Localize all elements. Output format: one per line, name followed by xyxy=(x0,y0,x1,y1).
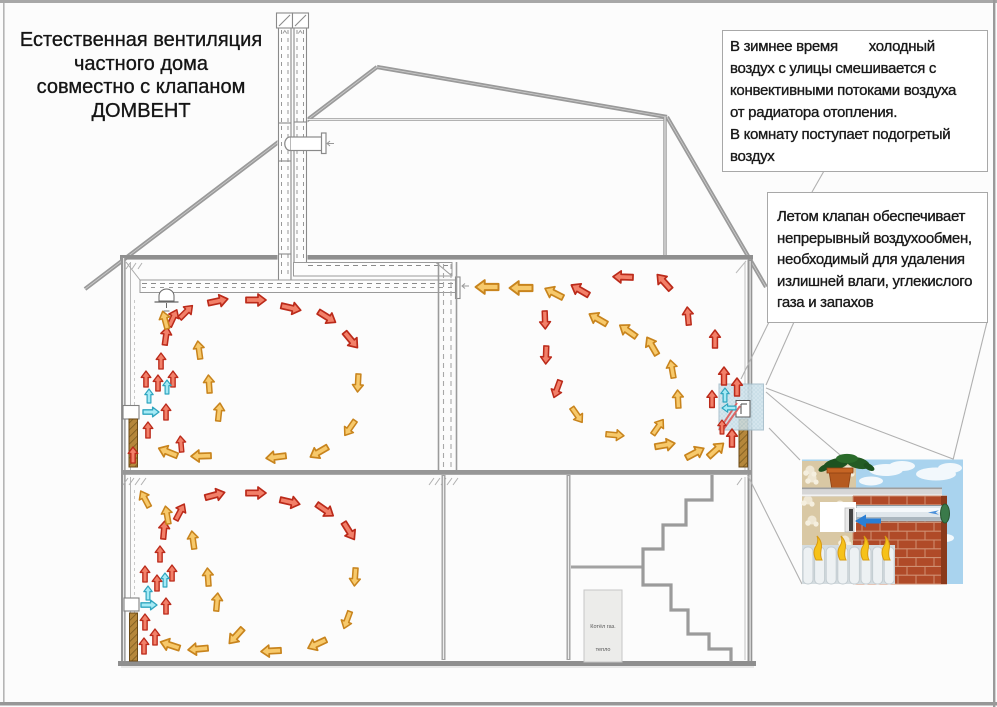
svg-text:Котёл газ.: Котёл газ. xyxy=(590,624,616,630)
svg-text:тепло: тепло xyxy=(596,647,611,653)
